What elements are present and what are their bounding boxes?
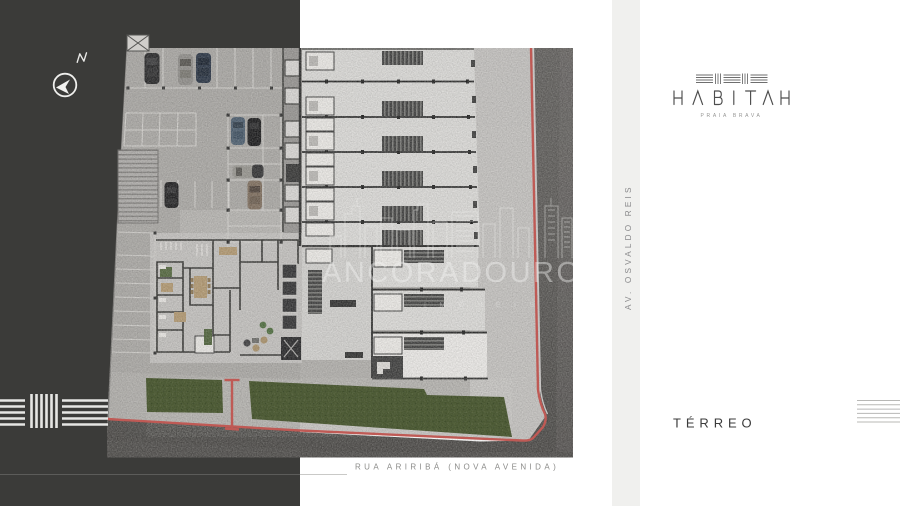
svg-text:ANCORADOURO: ANCORADOURO: [322, 257, 582, 289]
svg-text:AV. OSVALDO REIS: AV. OSVALDO REIS: [624, 184, 633, 310]
svg-text:TÉRREO: TÉRREO: [673, 416, 757, 431]
svg-text:PRAIA BRAVA: PRAIA BRAVA: [701, 113, 763, 119]
svg-text:RUA ARIRIBÁ (NOVA AVENIDA): RUA ARIRIBÁ (NOVA AVENIDA): [355, 463, 559, 472]
svg-text:IMÓVEIS: IMÓVEIS: [424, 300, 548, 309]
